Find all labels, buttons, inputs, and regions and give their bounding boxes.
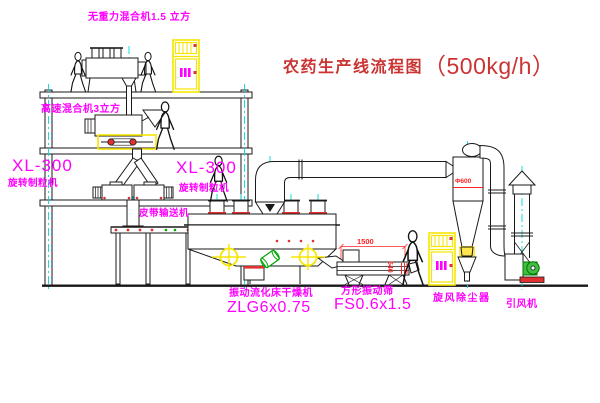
belt-conveyor [111, 227, 199, 284]
person-roof-left [71, 52, 86, 91]
title-capacity: （500kg/h） [423, 53, 555, 79]
cyclone-separator [453, 144, 483, 282]
label-dryer-name: 振动流化床干燥机 [229, 289, 313, 299]
label-granulator-center-name: 旋转制粒机 [179, 184, 229, 194]
control-cabinet-2 [429, 233, 455, 285]
induced-draft-fan [505, 254, 544, 283]
label-granulator-left-name: 旋转制粒机 [8, 179, 58, 189]
title-chinese: 农药生产线流程图 [283, 59, 423, 76]
dim-discharge-height: 540 [386, 261, 393, 273]
label-gravity-mixer: 无重力混合机1.5 立方 [88, 13, 191, 23]
label-cyclone: 旋风除尘器 [433, 294, 491, 304]
label-dryer-model: ZLG6x0.75 [227, 300, 311, 316]
cad-flow-diagram: 农药生产线流程图（500kg/h） 无重力混合机1.5 立方 高速混合机3立方 … [0, 0, 600, 403]
label-granulator-center-model: XL-300 [176, 159, 237, 176]
ground-line [42, 285, 588, 287]
person-floor2 [157, 102, 175, 149]
y-chute [115, 149, 158, 187]
downcomer-duct [480, 146, 516, 267]
control-cabinet-1 [173, 40, 199, 92]
label-sieve-model: FS0.6x1.5 [334, 297, 411, 313]
mixer-drive-highlight [98, 135, 156, 149]
label-high-speed-mixer: 高速混合机3立方 [41, 105, 121, 115]
person-ground [403, 231, 423, 285]
dim-cyclone-diameter: Φ600 [455, 179, 471, 186]
diagram-title: 农药生产线流程图（500kg/h） [283, 47, 555, 81]
dim-sieve-length: 1500 [357, 238, 374, 246]
label-fan: 引风机 [506, 300, 538, 310]
label-belt-conveyor: 皮带输送机 [139, 209, 189, 219]
label-granulator-left-model: XL-300 [12, 157, 73, 174]
